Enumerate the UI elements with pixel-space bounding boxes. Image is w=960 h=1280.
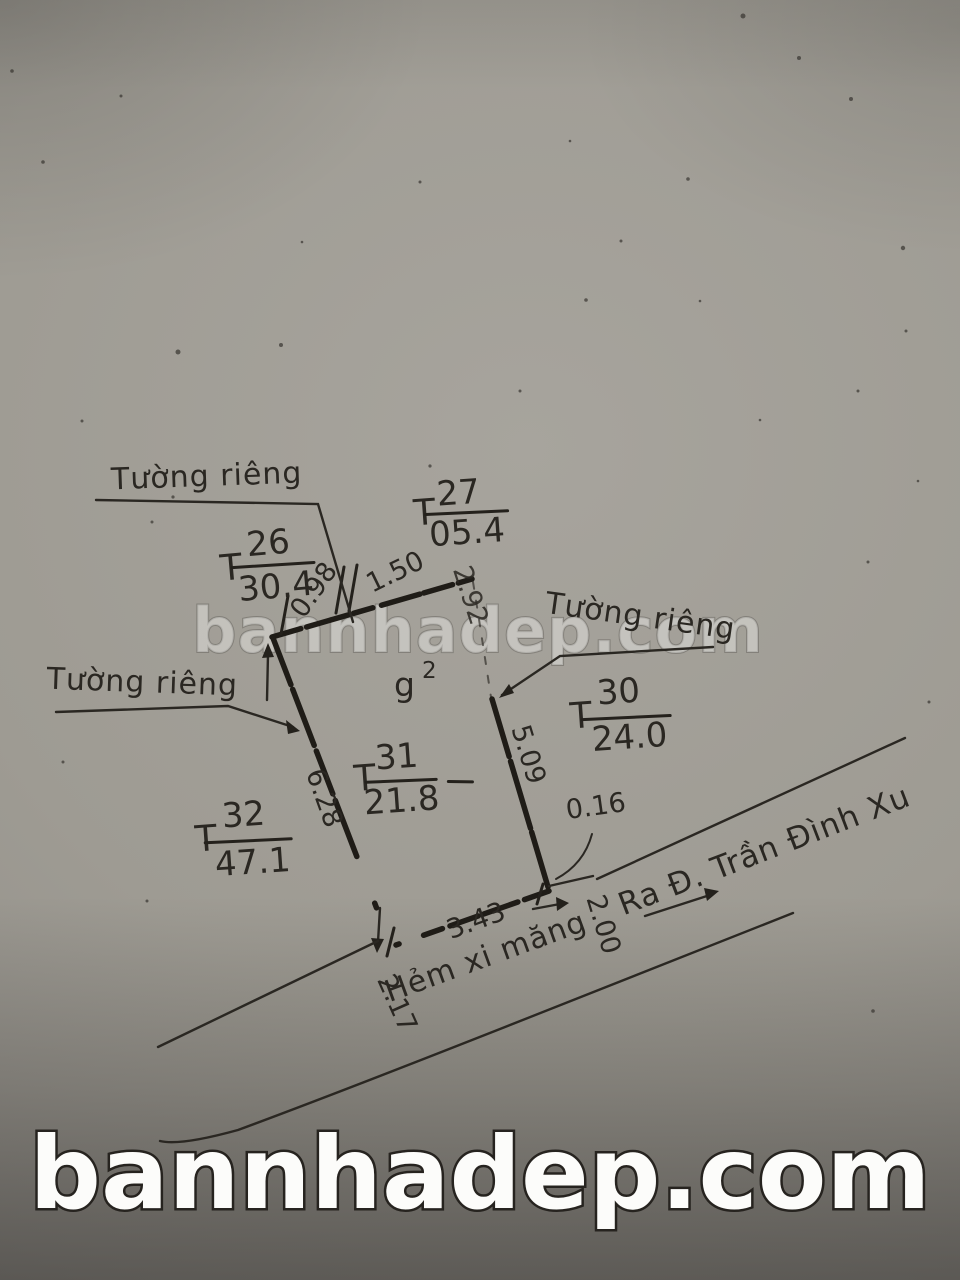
- wall-label-left: Tường riêng: [45, 662, 239, 704]
- parcel-label-T27: T 27 05.4: [410, 470, 510, 556]
- structure-note-sup: 2: [422, 658, 437, 684]
- parcel-area: 47.1: [214, 840, 292, 885]
- plot-survey-diagram: bannhadep.com: [0, 0, 960, 1280]
- down-arrow: [378, 908, 380, 942]
- parcel-area: 05.4: [428, 510, 506, 555]
- dim-left-edge: 6.28: [299, 765, 349, 832]
- corner-stub-line: [549, 876, 593, 886]
- structure-note-main: g: [394, 665, 415, 704]
- parcel-number: 31: [374, 736, 420, 779]
- dim-top-mid: 1.50: [361, 545, 429, 599]
- photographed-cadastral-sketch: bannhadep.com: [0, 0, 960, 1280]
- watermark-bottom: bannhadep.com: [29, 1115, 930, 1232]
- leader-offset-016: [556, 834, 592, 879]
- dim-right-edge: 5.09: [505, 721, 552, 788]
- parcel-number: 30: [595, 671, 641, 714]
- up-arrow: [267, 654, 268, 700]
- alley-line-upper-left: [158, 941, 378, 1047]
- parcel-number: 26: [245, 522, 292, 566]
- dim-corner-offset: 0.16: [564, 787, 628, 826]
- leader-wall-left: [56, 706, 293, 727]
- parcel-label-T31: T 31 21.8: [350, 732, 475, 824]
- parcel-label-T32: T 32 47.1: [191, 792, 294, 887]
- parcel-area: 24.0: [590, 715, 668, 760]
- parcel-label-T30: T 30 24.0: [566, 669, 673, 762]
- parcel-number: 32: [220, 794, 266, 837]
- wall-label-top-left: Tường riêng: [109, 456, 303, 498]
- parcel-number: 27: [435, 472, 481, 515]
- parcel-area: 21.8: [362, 778, 440, 823]
